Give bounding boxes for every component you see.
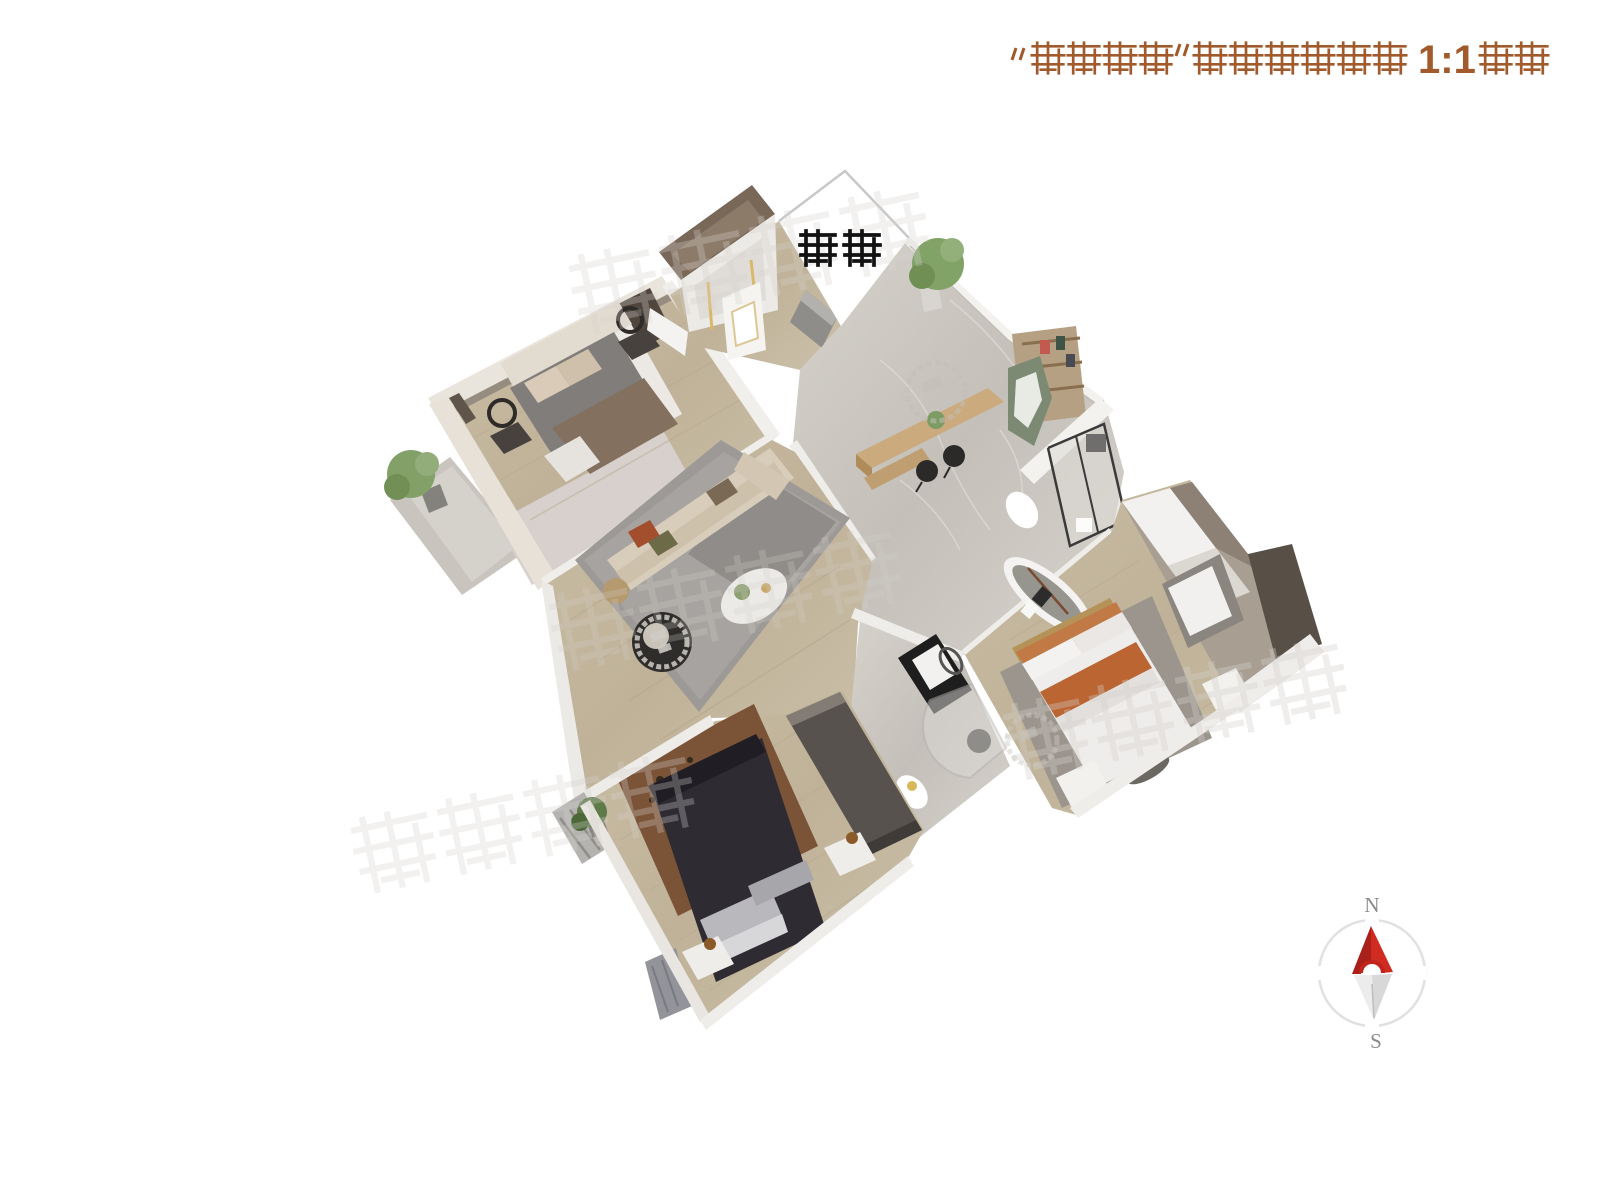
svg-text:S: S <box>1370 1029 1382 1053</box>
svg-text:1:1: 1:1 <box>1418 38 1476 82</box>
svg-text:N: N <box>1364 893 1379 917</box>
